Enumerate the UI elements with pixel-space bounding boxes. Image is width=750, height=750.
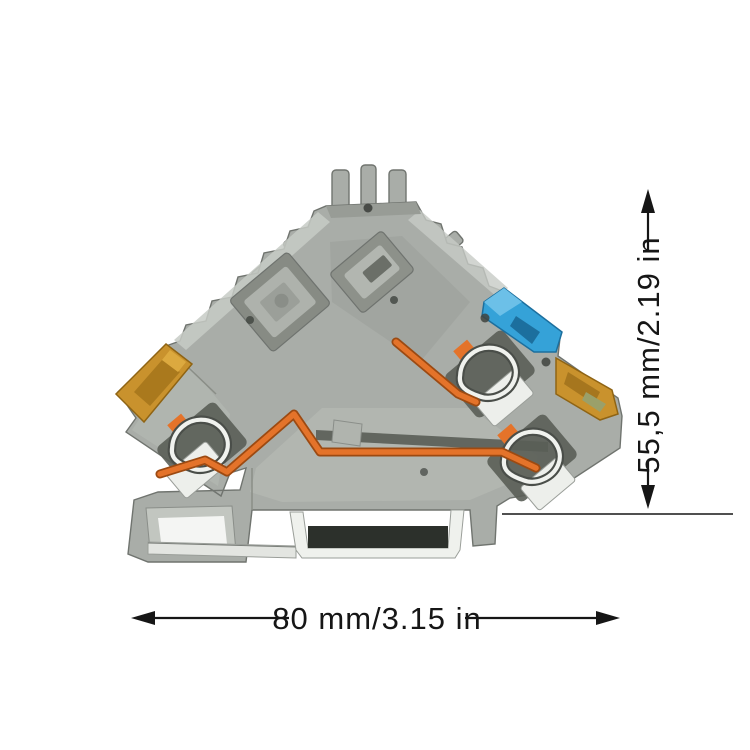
width-dimension-label: 80 mm/3.15 in <box>272 601 481 636</box>
width-dimension: 80 mm/3.15 in <box>131 601 620 636</box>
busbar-block <box>332 420 362 446</box>
height-dimension-label: 55,5 mm/2.19 in <box>631 236 666 473</box>
housing-hole <box>364 204 373 213</box>
housing-hole <box>481 314 490 323</box>
terminal-block-illustration: 80 mm/3.15 in 55,5 mm/2.19 in <box>0 0 750 750</box>
rail-dark-slot <box>308 526 448 548</box>
height-arrow-top <box>641 189 655 213</box>
left-foot-window <box>158 516 227 544</box>
housing-hole <box>390 296 398 304</box>
housing-hole <box>420 468 428 476</box>
product-screenshot: 80 mm/3.15 in 55,5 mm/2.19 in <box>0 0 750 750</box>
width-arrow-left <box>131 611 155 625</box>
height-arrow-bottom <box>641 485 655 509</box>
housing-hole <box>542 358 551 367</box>
width-arrow-right <box>596 611 620 625</box>
housing-hole <box>246 316 254 324</box>
